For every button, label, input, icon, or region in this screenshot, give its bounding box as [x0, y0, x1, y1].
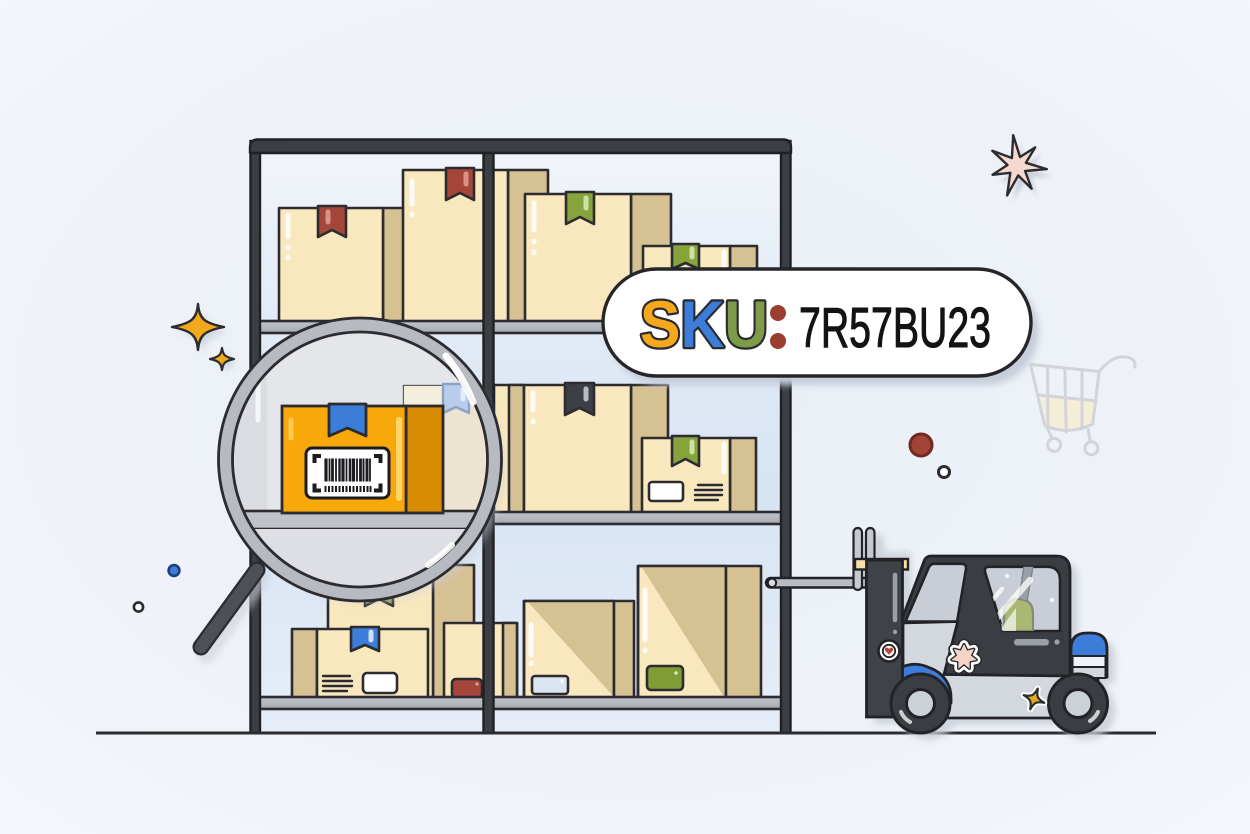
svg-text:7R57BU23: 7R57BU23: [799, 296, 991, 360]
svg-text:SKU: SKU: [640, 287, 768, 361]
